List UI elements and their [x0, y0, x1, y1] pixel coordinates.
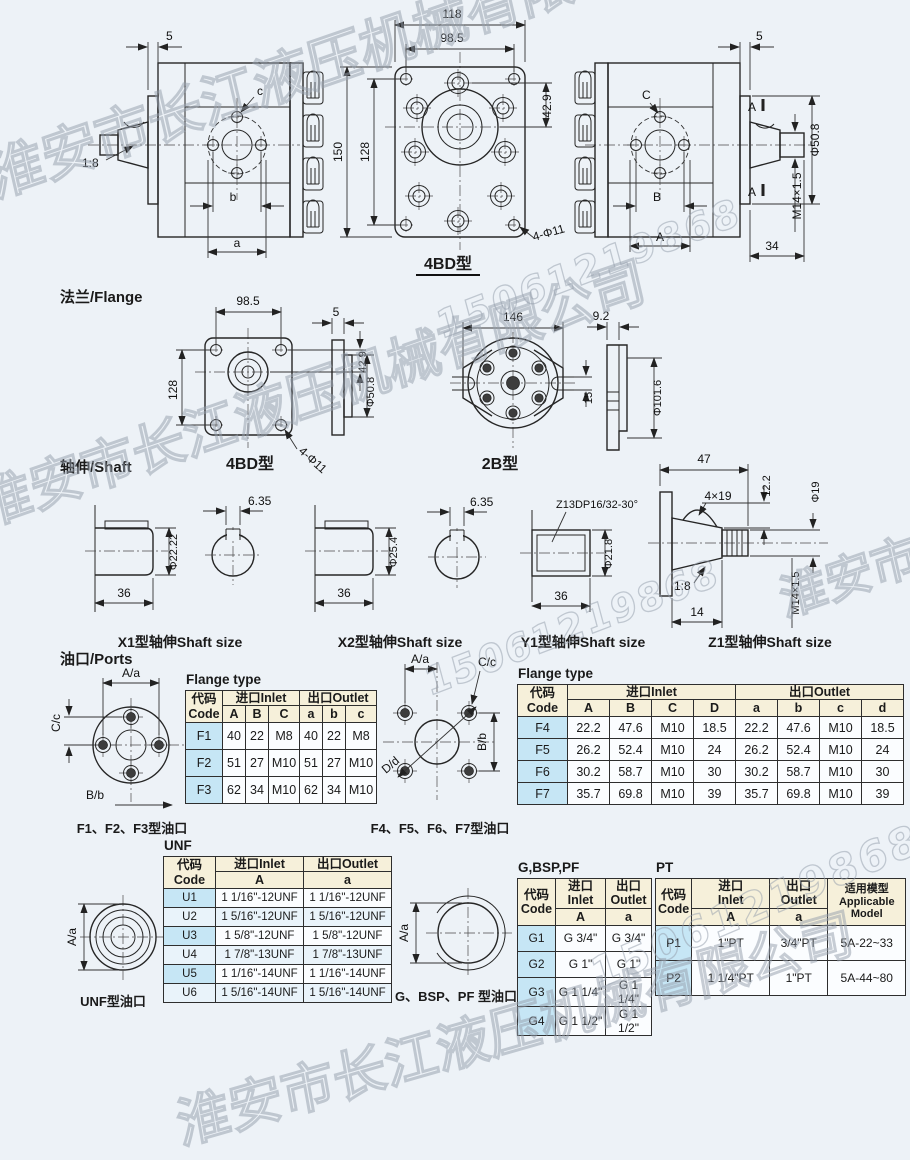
shaft-heading: 轴伸/Shaft	[60, 456, 132, 477]
code-header: 代码Code	[186, 691, 223, 723]
dim-len: 34	[765, 239, 779, 253]
port-dim-d: D/d	[379, 754, 402, 777]
dim-A: A	[656, 230, 664, 244]
thread-dia: Φ19	[810, 481, 822, 502]
dim-w: 146	[503, 310, 523, 324]
table-row: F630.258.7M103030.258.7M1030	[518, 761, 904, 783]
dim-plate: 5	[166, 29, 173, 43]
shaft-z1-caption: Z1型轴伸Shaft size	[708, 632, 832, 652]
port-diagram-g: A/a	[397, 888, 512, 978]
plate-dia: Φ101.6	[652, 380, 664, 416]
table-title: Flange type	[186, 672, 377, 687]
table-row: U21 5/16"-12UNF1 5/16"-12UNF	[164, 908, 392, 927]
inlet-header: 进口Inlet	[556, 879, 606, 909]
code-header: 代码Code	[518, 685, 568, 717]
table-row: U61 5/16"-14UNF1 5/16"-14UNF	[164, 984, 392, 1003]
dim-top-hole: 42.9	[540, 94, 554, 118]
table-row: F36234M106234M10	[186, 777, 377, 804]
pt-table: PT 代码Code 进口Inlet 出口Outlet 适用模型Applicabl…	[655, 860, 906, 996]
port-dim-left: C/c	[49, 714, 63, 732]
thread-spec: M14×1.5	[790, 571, 802, 614]
table-row: G4G 1 1/2"G 1 1/2"	[518, 1006, 652, 1035]
f123-caption: F1、F2、F3型油口	[77, 818, 188, 837]
shaft-x1-caption: X1型轴伸Shaft size	[118, 632, 242, 652]
shaft-dia: Φ21.8	[603, 539, 615, 569]
port-dim-top: A/a	[411, 652, 429, 666]
dim-height: 150	[331, 142, 345, 162]
table-title: UNF	[164, 838, 392, 853]
port-dim-c: C/c	[478, 655, 496, 669]
table-title: G,BSP,PF	[518, 860, 652, 875]
unf-port-caption: UNF型油口	[80, 991, 146, 1010]
plate-thickness: 5	[333, 305, 340, 319]
port-dim: A/a	[65, 928, 79, 946]
shaft-len: 36	[554, 589, 568, 603]
dim-b: b	[230, 190, 237, 204]
side-view-right: A A C B A 5 Φ50.8 M14×1.5 34	[575, 29, 822, 262]
dim-bolt-width: 98.5	[440, 31, 464, 45]
port-dim-right: B/b	[475, 733, 489, 751]
table-title: PT	[656, 860, 906, 875]
dim-dia: Φ50.8	[808, 123, 822, 156]
outlet-header: 出口Outlet	[606, 879, 652, 909]
table-row: F422.247.6M1018.522.247.6M1018.5	[518, 717, 904, 739]
f4567-caption: F4、F5、F6、F7型油口	[371, 818, 510, 837]
section-mark: A	[748, 100, 756, 114]
side-view-left: c 5 1:8 b a	[82, 29, 323, 258]
code-header: 代码Code	[656, 879, 692, 926]
table-row: G1G 3/4"G 3/4"	[518, 925, 652, 951]
port-diagram-unf: A/a	[65, 895, 166, 980]
key-height: 12.2	[761, 475, 773, 496]
model-header: 适用模型ApplicableModel	[828, 879, 906, 926]
table-row: P21 1/4"PT1"PT5A-44~80	[656, 960, 906, 995]
front-view: 118 98.5 42.9 150 128 4-Φ11	[331, 7, 567, 250]
dim-slot: 15	[583, 392, 595, 404]
outlet-header: 出口Outlet	[736, 685, 904, 700]
g-table: G,BSP,PF 代码Code 进口Inlet 出口Outlet Aa G1G …	[517, 860, 652, 1036]
dim-bolt-w: 98.5	[236, 294, 260, 308]
code-header: 代码Code	[518, 879, 556, 926]
inlet-header: 进口Inlet	[568, 685, 736, 700]
shaft-len: 36	[117, 586, 131, 600]
dim-width: 118	[442, 7, 461, 21]
outlet-header: 出口Outlet	[304, 857, 392, 872]
port-dim: A/a	[397, 924, 411, 942]
shaft-z1: 47 4×19 12.2 Φ19 1:8 M14×1.5 14	[648, 452, 828, 628]
shaft-x1: 36 Φ22.22 6.35	[85, 494, 272, 612]
plate-dia: Φ50.8	[365, 377, 377, 407]
shaft-len: 47	[697, 452, 711, 466]
table-row: F25127M105127M10	[186, 750, 377, 777]
port-diagram-f4567: D/d A/a C/c B/b	[379, 652, 500, 800]
flange-table-f123: Flange type 代码Code 进口Inlet 出口Outlet ABCa…	[185, 672, 377, 804]
port-dim-bottom: B/b	[86, 788, 104, 802]
dim-B: B	[653, 190, 661, 204]
table-row: F14022M84022M8	[186, 723, 377, 750]
hole-label-c: c	[257, 84, 263, 98]
dim-bolt-h: 128	[166, 380, 180, 400]
shaft-dia: Φ25.4	[388, 537, 400, 567]
section-mark: A	[748, 185, 756, 199]
shaft-y1-caption: Y1型轴伸Shaft size	[521, 632, 645, 652]
inlet-header: 进口Inlet	[692, 879, 770, 909]
plate-thickness: 9.2	[593, 309, 610, 323]
inlet-header: 进口Inlet	[216, 857, 304, 872]
shaft-len: 36	[337, 586, 351, 600]
front-view-caption: 4BD型	[416, 250, 480, 274]
note-holes: 4-Φ11	[531, 221, 567, 244]
hole-label-c: C	[642, 88, 651, 102]
dim-bolt-height: 128	[358, 142, 372, 162]
shaft-dia: Φ22.22	[168, 534, 180, 570]
outlet-header: 出口Outlet	[300, 691, 377, 706]
thread-len: 14	[690, 605, 704, 619]
g-port-caption: G、BSP、PF 型油口	[395, 986, 517, 1005]
flange-heading: 法兰/Flange	[60, 286, 143, 307]
table-title: Flange type	[518, 666, 904, 681]
dim-plate: 5	[756, 29, 763, 43]
taper-label: 1:8	[674, 579, 691, 593]
unf-table: UNF 代码Code 进口Inlet 出口Outlet Aa U11 1/16"…	[163, 838, 392, 1003]
table-row: P11"PT3/4"PT5A-22~33	[656, 925, 906, 960]
flange-2b: 146 15 9.2 Φ101.6	[450, 309, 664, 450]
flange-2b-caption: 2B型	[482, 450, 518, 474]
flange-4bd: 98.5 128 42.9 4-Φ11 5 Φ50.8	[166, 294, 377, 476]
key-width: 6.35	[248, 494, 272, 508]
dim-thread: M14×1.5	[790, 172, 804, 219]
dim-a: a	[234, 236, 241, 250]
shaft-x2-caption: X2型轴伸Shaft size	[338, 632, 462, 652]
code-header: 代码Code	[164, 857, 216, 889]
table-row: U51 1/16"-14UNF1 1/16"-14UNF	[164, 965, 392, 984]
technical-drawing-page: { "colors":{"background":"#edf2f7","line…	[0, 0, 910, 1022]
taper-label: 1:8	[82, 156, 99, 170]
table-row: F735.769.8M103935.769.8M1039	[518, 783, 904, 805]
table-row: U31 5/8"-12UNF1 5/8"-12UNF	[164, 927, 392, 946]
spline-note: Z13DP16/32-30°	[556, 499, 638, 511]
table-row: U11 1/16"-12UNF1 1/16"-12UNF	[164, 889, 392, 908]
flange-4bd-caption: 4BD型	[226, 450, 274, 474]
inlet-header: 进口Inlet	[223, 691, 300, 706]
table-row: U41 7/8"-13UNF1 7/8"-13UNF	[164, 946, 392, 965]
table-row: F526.252.4M102426.252.4M1024	[518, 739, 904, 761]
key-note: 4×19	[704, 489, 731, 503]
key-width: 6.35	[470, 495, 494, 509]
shaft-y1: Z13DP16/32-30° Φ21.8 36	[520, 499, 638, 612]
note-holes: 4-Φ11	[296, 444, 330, 477]
table-row: G3G 1 1/4"G 1 1/4"	[518, 977, 652, 1006]
flange-table-f4567: Flange type 代码Code 进口Inlet 出口Outlet ABCD…	[517, 666, 904, 805]
shaft-x2: 36 Φ25.4 6.35	[305, 495, 494, 612]
outlet-header: 出口Outlet	[770, 879, 828, 909]
port-diagram-f123: A/a C/c B/b	[49, 666, 195, 805]
table-row: G2G 1"G 1"	[518, 951, 652, 977]
